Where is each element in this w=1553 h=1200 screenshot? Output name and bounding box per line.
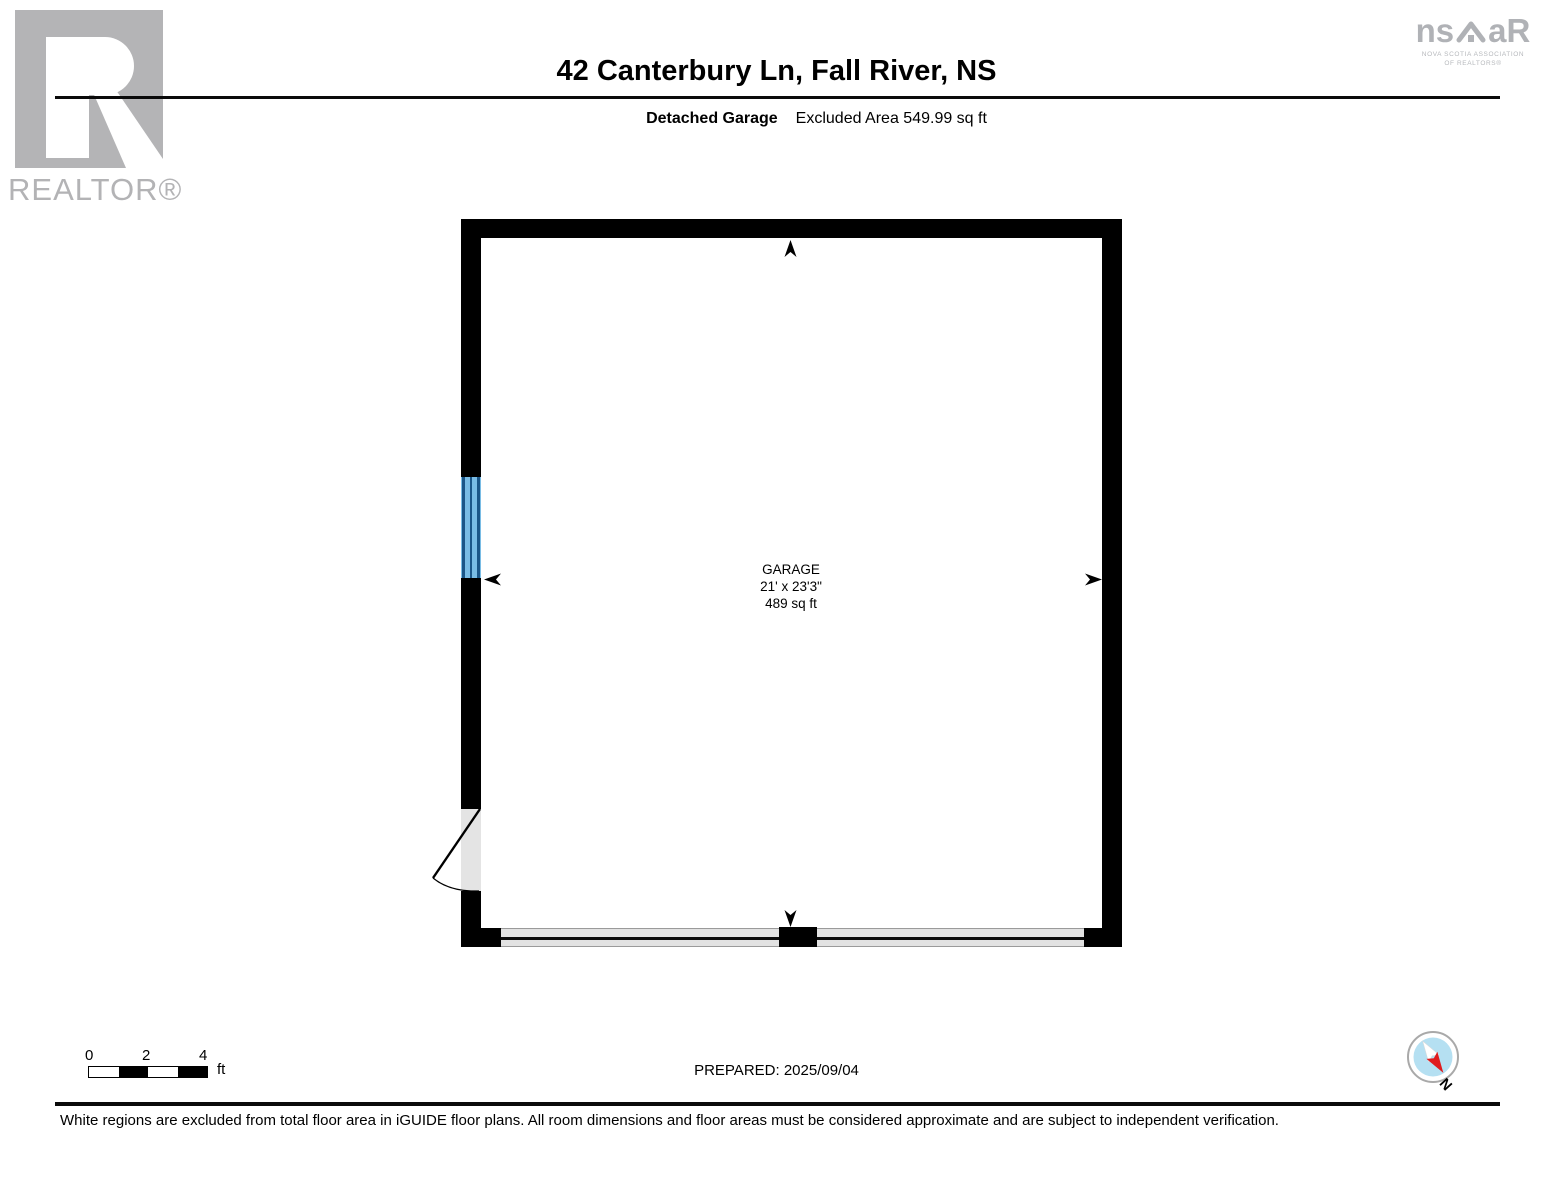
window-frame-line <box>477 477 480 578</box>
arrow-right-icon <box>1085 573 1102 586</box>
compass-north-icon <box>1406 1030 1460 1084</box>
nsar-text-right: aR <box>1488 16 1530 46</box>
floorplan-page: REALTOR® 42 Canterbury Ln, Fall River, N… <box>0 0 1553 1200</box>
door-swing-symbol <box>424 804 486 896</box>
realtor-block-r-icon <box>15 10 163 168</box>
nsar-subtext-line1: NOVA SCOTIA ASSOCIATION <box>1413 50 1533 59</box>
window-frame-line <box>462 477 465 578</box>
room-dimensions: 21' x 23'3" <box>691 578 891 595</box>
window-symbol <box>461 477 481 578</box>
window-frame-line <box>470 477 473 578</box>
nsar-logo: ns aR NOVA SCOTIA ASSOCIATION OF REALTOR… <box>1413 16 1533 68</box>
page-title: 42 Canterbury Ln, Fall River, NS <box>0 55 1553 88</box>
disclaimer-text: White regions are excluded from total fl… <box>60 1112 1500 1129</box>
nsar-text-left: ns <box>1416 16 1455 46</box>
wall-right <box>1102 219 1122 947</box>
wall-corner-bottom-right <box>1084 928 1122 947</box>
wall-left-middle <box>461 578 481 809</box>
floor-label: Detached Garage <box>646 110 778 127</box>
arrow-left-icon <box>484 573 501 586</box>
wall-left-upper <box>461 238 481 477</box>
nsar-subtext-line2: OF REALTORS® <box>1413 59 1533 68</box>
room-label: GARAGE 21' x 23'3" 489 sq ft <box>691 561 891 612</box>
room-name: GARAGE <box>691 561 891 578</box>
wall-corner-bottom-left <box>461 928 501 947</box>
title-divider <box>55 96 1500 99</box>
plan-subtitle: Detached GarageExcluded Area 549.99 sq f… <box>0 110 1553 128</box>
prepared-date: PREPARED: 2025/09/04 <box>0 1062 1553 1079</box>
footer-divider <box>55 1102 1500 1106</box>
arrow-up-icon <box>784 240 797 257</box>
excluded-area-label: Excluded Area 549.99 sq ft <box>796 110 987 127</box>
room-area: 489 sq ft <box>691 595 891 612</box>
wall-top <box>461 219 1122 238</box>
nsar-house-icon <box>1456 16 1486 46</box>
wall-post-bottom-center <box>779 927 817 947</box>
arrow-down-icon <box>784 910 797 927</box>
realtor-logo <box>15 10 163 168</box>
realtor-wordmark: REALTOR® <box>8 172 182 208</box>
